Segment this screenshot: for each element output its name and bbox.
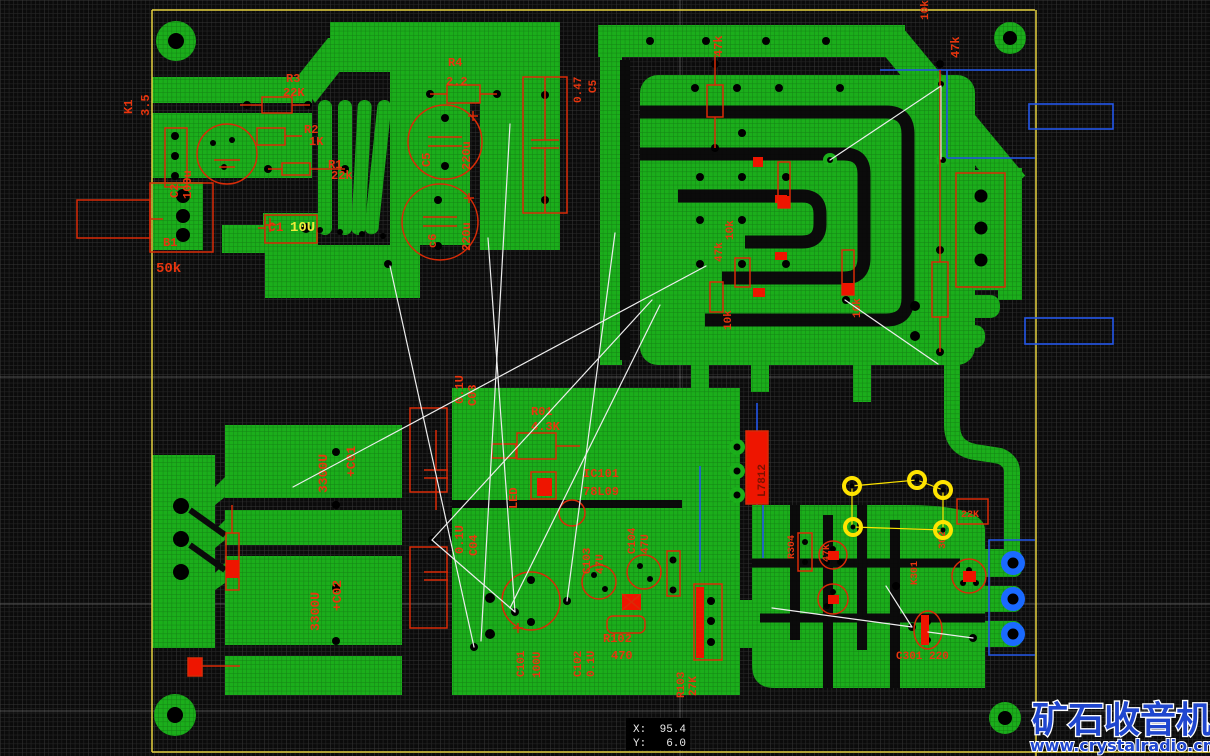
component-label: c6 [426, 234, 440, 248]
component-label: R103 [676, 671, 688, 698]
component-label: 10k [920, 0, 932, 20]
component-label: 1K [309, 135, 324, 149]
coord-x-value: 95.4 [660, 724, 687, 736]
component-label: 22K [961, 510, 979, 521]
watermark: 矿石收音机 www.crystalradio.cn [1030, 700, 1210, 755]
component-label: 10k [725, 220, 737, 240]
pcb-editor-canvas[interactable]: K13.5R322KR21KR122kC2100uB150kC110UR42.2… [0, 0, 1210, 756]
coord-y-label: Y: [633, 738, 646, 750]
watermark-title: 矿石收音机 [1032, 700, 1210, 741]
component-label: C301 220 [896, 651, 949, 663]
component-label: 100u [181, 170, 195, 199]
component-label: 22K [283, 86, 305, 100]
coord-y-value: 6.0 [666, 738, 686, 750]
component-label: LED [507, 487, 521, 509]
component-label: R3 [286, 72, 300, 86]
component-label: 22k [331, 169, 353, 183]
component-label: K1 [122, 100, 136, 114]
component-label: 78L09 [583, 485, 619, 499]
component-label: 10k [723, 310, 735, 330]
component-label: B1 [163, 236, 177, 250]
component-label: +C01 [344, 446, 359, 477]
component-label: 0.1U [453, 525, 467, 554]
component-label: 220u [460, 141, 474, 170]
component-label: 47k [949, 36, 963, 58]
component-label: 47k [714, 242, 726, 262]
component-label: 10U [290, 220, 315, 236]
component-label: C102 [573, 651, 585, 677]
component-label: C103 [582, 547, 594, 574]
component-label: 220u [460, 222, 474, 251]
component-label: 50k [156, 261, 181, 277]
component-label: IC101 [583, 467, 619, 481]
component-label: 470 [611, 649, 633, 663]
pcb-drawing[interactable]: K13.5R322KR21KR122kC2100uB150kC110UR42.2… [0, 0, 1210, 756]
component-label: C104 [627, 527, 639, 554]
component-label: 2.2 [446, 75, 468, 89]
component-label: 27K [688, 676, 700, 696]
component-label: R102 [603, 632, 632, 646]
component-label: 100U [532, 652, 544, 678]
component-label: K301 [910, 561, 921, 585]
component-label: 3300U [308, 592, 323, 631]
component-label: R304 [787, 535, 798, 559]
component-label: C04 [467, 534, 481, 556]
component-label: 47K [822, 544, 833, 562]
component-label: C5 [588, 79, 600, 93]
blue-pads [1001, 551, 1025, 646]
coord-x-label: X: [633, 724, 646, 736]
component-label: C2 [168, 184, 182, 198]
component-label: +C02 [330, 580, 345, 611]
component-label: 47U [595, 554, 607, 574]
component-label: C101 [516, 650, 528, 677]
watermark-url: www.crystalradio.cn [1030, 736, 1210, 755]
component-label: 47k [712, 35, 726, 57]
component-label: 3.5 [139, 94, 153, 116]
component-label: 302 [938, 531, 949, 549]
component-label: 47U [640, 534, 652, 554]
component-label: 0.1U [586, 651, 598, 677]
component-label: L7812 [757, 464, 769, 497]
component-label: 0.47 [573, 77, 585, 103]
component-label: C5 [420, 153, 434, 167]
component-label: R4 [448, 56, 462, 70]
component-label: 10k [852, 298, 864, 318]
component-label: C1 [268, 220, 284, 235]
coordinate-readout: X: 95.4 Y: 6.0 [626, 718, 690, 750]
